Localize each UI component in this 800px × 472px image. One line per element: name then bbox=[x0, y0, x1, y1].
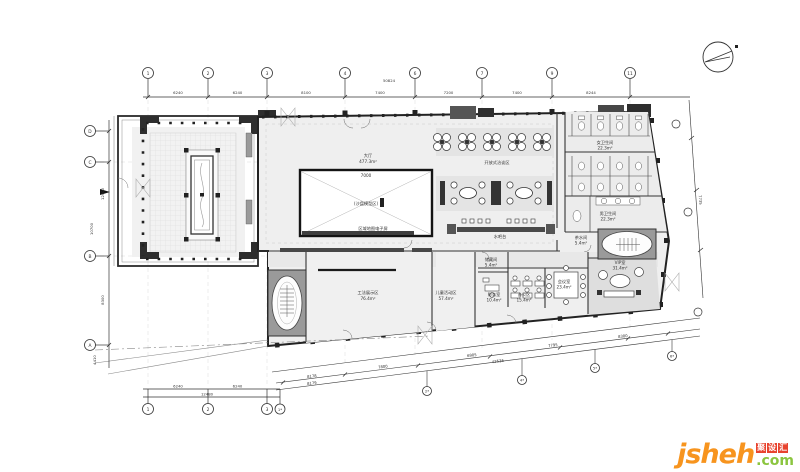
room-area-hall: 477.3m² bbox=[359, 159, 377, 164]
dim-label: 6240 bbox=[233, 384, 243, 389]
grid-bubble-label: 4* bbox=[520, 378, 524, 383]
left-dimension-line: 12400 10700 8300 4410 D C B A bbox=[85, 120, 112, 368]
top-dimension-line: 6240 6240 8100 7400 7200 7400 8244 50824… bbox=[143, 68, 691, 100]
dim-label: 7400 bbox=[375, 90, 385, 95]
grid-bubble-label: 11 bbox=[627, 71, 633, 77]
stair-left bbox=[268, 270, 306, 336]
plan-canvas: 6240 6240 8100 7400 7200 7400 8244 50824… bbox=[0, 0, 800, 472]
room-area-office: 15.4m² bbox=[516, 298, 531, 303]
entry-door bbox=[246, 200, 252, 224]
entrance-canopy bbox=[450, 106, 476, 119]
room-label-kids: 儿童活动区 bbox=[436, 289, 457, 296]
grid-bubble-label: 1 bbox=[147, 71, 150, 77]
accessible-toilet bbox=[573, 211, 581, 222]
grid-bubble-label: 2 bbox=[207, 407, 210, 413]
room-area-wc-men: 22.3m² bbox=[600, 217, 615, 222]
floor-plan-drawing: 6240 6240 8100 7400 7200 7400 8244 50824… bbox=[0, 0, 800, 472]
room-area-wc-women: 22.3m² bbox=[597, 146, 612, 151]
north-arrow-icon bbox=[703, 42, 738, 72]
grid-bubbles-bottom: 1 2 3 1* bbox=[143, 404, 286, 415]
room-label-craft: 工法展示区 bbox=[358, 289, 379, 296]
grid-bubble-label: 2 bbox=[207, 71, 210, 77]
dim-total-label: 12480 bbox=[201, 392, 214, 397]
entry-door bbox=[246, 133, 252, 157]
room-area-meeting: 23.4m² bbox=[556, 285, 571, 290]
room-label-water-bar: 水吧台 bbox=[494, 233, 507, 240]
dim-label: 12400 bbox=[100, 187, 105, 200]
dim-label: 7735 bbox=[698, 195, 704, 206]
watermark-cn-char: 设 bbox=[767, 443, 777, 453]
grid-bubble-label: 7 bbox=[481, 71, 484, 77]
room-label-vip: VIP室 bbox=[615, 259, 626, 265]
grid-bubble-label: 1* bbox=[278, 407, 282, 412]
entrance-canopy bbox=[478, 108, 494, 117]
watermark-brand: jsheh bbox=[677, 441, 754, 468]
grid-bubble-label: 5* bbox=[593, 366, 597, 371]
grid-bubbles-top: 1 2 3 4 6 7 9 11 bbox=[143, 68, 636, 79]
room-label-screen-wall: 区域地图电子屏 bbox=[358, 225, 387, 232]
room-area-craft: 76.4m² bbox=[360, 296, 375, 301]
grid-bubble-label: B bbox=[88, 254, 91, 260]
watermark-com: .com bbox=[756, 454, 794, 468]
watermark-cn-char: 汇 bbox=[778, 443, 788, 453]
room-area-vip: 31.4m² bbox=[612, 266, 627, 271]
watermark-cn-char: 聚 bbox=[756, 443, 766, 453]
room-label-hall: 大厅 bbox=[364, 152, 372, 159]
room-label-open-lounge: 开放式洽谈区 bbox=[484, 159, 509, 166]
grid-bubbles-incline: 2* 4* 5* 6* bbox=[423, 352, 677, 396]
grid-bubbles-left: D C B A bbox=[85, 126, 96, 351]
dim-label: 6240 bbox=[173, 384, 183, 389]
entry-court-annex bbox=[100, 110, 276, 266]
dim-label: 6240 bbox=[173, 90, 183, 95]
room-label-sand-table: (沙盘模型区) bbox=[354, 200, 379, 207]
grid-bubble-label: 9 bbox=[551, 71, 554, 77]
jsheh-watermark: jsheh 聚 设 汇 .com bbox=[677, 441, 794, 468]
grid-bubble-label: C bbox=[88, 160, 91, 166]
room-area-pantry: 5.4m² bbox=[575, 241, 588, 246]
room-area-finance: 10.4m² bbox=[486, 298, 501, 303]
dim-label: 10700 bbox=[89, 222, 94, 235]
right-dimension-line: 7735 bbox=[672, 100, 703, 316]
open-lounge bbox=[434, 113, 558, 251]
grid-bubble-label: 6* bbox=[670, 354, 674, 359]
dim-total-label: 50824 bbox=[383, 78, 396, 83]
dim-label: 7400 bbox=[512, 90, 522, 95]
sand-table-dim: 7000 bbox=[361, 173, 372, 178]
grid-bubble-label: 1 bbox=[147, 407, 150, 413]
watermark-cn-blocks: 聚 设 汇 bbox=[756, 443, 794, 453]
bottom-dimension-line: 6240 6240 12480 1 2 3 1* bbox=[143, 384, 286, 415]
grid-bubble-label: 2* bbox=[425, 389, 429, 394]
dim-label: 8100 bbox=[301, 90, 311, 95]
dim-total-label: 42536 bbox=[492, 358, 505, 365]
grid-bubble-label: 3 bbox=[266, 71, 269, 77]
stair-right bbox=[598, 229, 656, 259]
door-arc bbox=[118, 178, 128, 188]
grid-bubble-label: 6 bbox=[414, 71, 417, 77]
room-area-kids: 57.4m² bbox=[438, 296, 453, 301]
dim-label: 7200 bbox=[444, 90, 454, 95]
room-area-storage: 5.4m² bbox=[485, 263, 498, 268]
grid-bubble-label: A bbox=[88, 343, 91, 349]
dim-label: 6240 bbox=[233, 90, 243, 95]
water-feature bbox=[184, 148, 220, 242]
grid-bubble-label: 4 bbox=[344, 71, 347, 77]
map-screen-wall bbox=[302, 231, 414, 235]
dim-label: 6905 bbox=[467, 352, 478, 358]
dim-label: 8244 bbox=[586, 90, 596, 95]
dim-label: 8300 bbox=[100, 295, 105, 305]
grid-bubble-label: 3 bbox=[266, 407, 269, 413]
dim-label: 4410 bbox=[92, 355, 97, 365]
